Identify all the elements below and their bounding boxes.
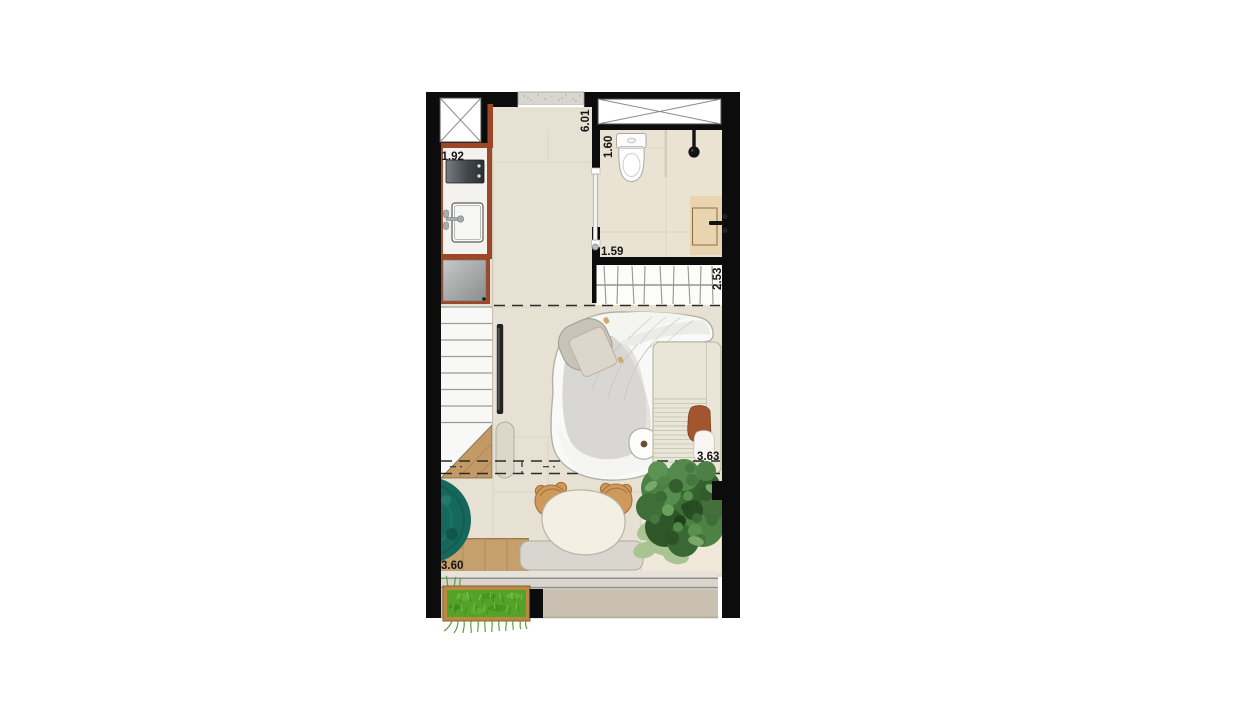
svg-text:2.53: 2.53 — [712, 268, 724, 290]
svg-text:3.63: 3.63 — [697, 451, 719, 463]
svg-text:1.59: 1.59 — [601, 246, 623, 258]
svg-text:6.01: 6.01 — [580, 109, 592, 132]
svg-text:3.60: 3.60 — [441, 560, 463, 572]
svg-text:1.60: 1.60 — [603, 136, 615, 158]
svg-text:1.92: 1.92 — [442, 151, 464, 163]
